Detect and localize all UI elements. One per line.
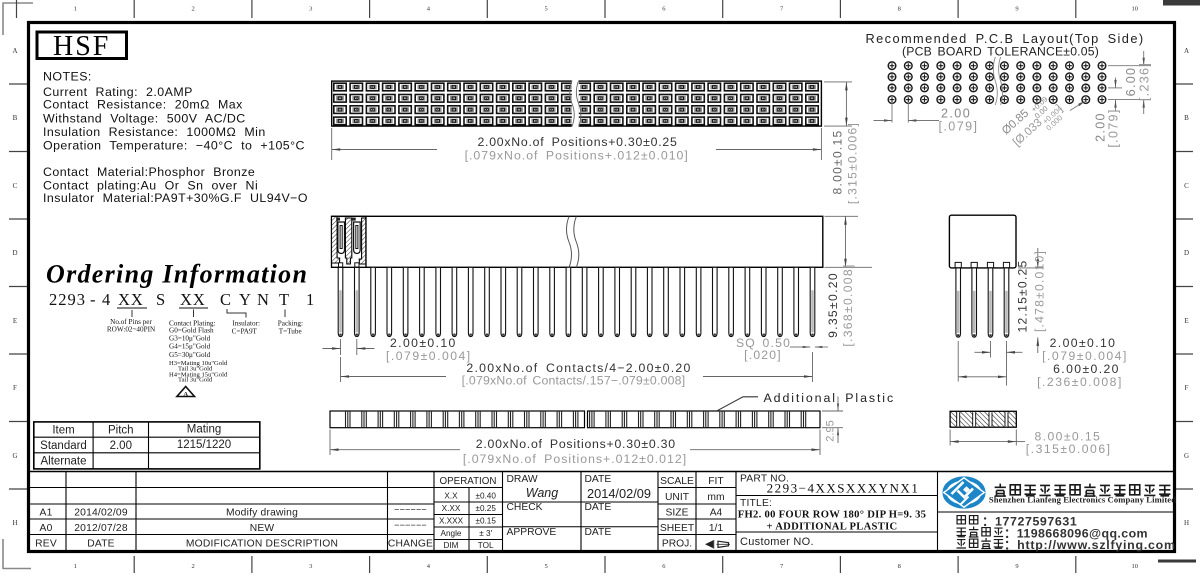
svg-text:2.00±0.10: 2.00±0.10 — [390, 336, 457, 350]
svg-text:[.079±0.004]: [.079±0.004] — [386, 349, 472, 363]
svg-text:6.00±0.20: 6.00±0.20 — [1053, 362, 1120, 376]
svg-text:E: E — [1184, 317, 1188, 325]
svg-text:Contact Material:Phosphor Br: Contact Material:Phosphor Bronze — [43, 165, 255, 179]
svg-text:C: C — [13, 182, 18, 190]
svg-text:B: B — [1184, 114, 1189, 122]
svg-text:Insulator:: Insulator: — [232, 319, 260, 327]
svg-text:[.079xNo.of Positions+.012±0.: [.079xNo.of Positions+.012±0.010] — [465, 149, 689, 163]
svg-text:Contact Resistance: 20mΩ Ma: Contact Resistance: 20mΩ Max — [43, 98, 243, 112]
svg-text:X.XXX: X.XXX — [439, 517, 464, 526]
svg-text:2.00: 2.00 — [1094, 112, 1108, 142]
svg-text:Insulation Resistance: 1000M: Insulation Resistance: 1000MΩ Min — [43, 125, 266, 139]
svg-text:Ordering Information: Ordering Information — [46, 260, 308, 289]
svg-text:Customer NO.: Customer NO. — [740, 536, 814, 548]
svg-text:2012/07/28: 2012/07/28 — [74, 523, 128, 534]
svg-text:OPERATION: OPERATION — [440, 476, 497, 487]
svg-text:DATE: DATE — [87, 539, 115, 550]
svg-text:X.X: X.X — [444, 492, 458, 501]
svg-text:Modify drawing: Modify drawing — [226, 508, 298, 519]
svg-text:C=PA9T: C=PA9T — [232, 328, 258, 336]
svg-text:[.079]: [.079] — [1107, 108, 1121, 147]
svg-text:DATE: DATE — [585, 527, 612, 538]
svg-text:T: T — [279, 290, 290, 309]
svg-text:±0.40: ±0.40 — [475, 492, 496, 501]
svg-text:1/1: 1/1 — [709, 523, 724, 534]
svg-text:+ ADDITIONAL PLASTIC: + ADDITIONAL PLASTIC — [767, 522, 898, 533]
svg-text:Standard: Standard — [40, 440, 87, 452]
svg-text:DIM: DIM — [443, 541, 458, 550]
svg-text:G0=Gold Flash: G0=Gold Flash — [169, 327, 214, 335]
svg-text:CHANGE: CHANGE — [388, 539, 433, 550]
svg-text:Packing:: Packing: — [278, 319, 303, 327]
svg-text:HSF: HSF — [53, 31, 110, 62]
svg-text:H: H — [1184, 519, 1189, 527]
svg-text:SIZE: SIZE — [666, 508, 689, 519]
svg-text:G4=15μ"Gold: G4=15μ"Gold — [169, 342, 211, 350]
svg-text:1: 1 — [74, 6, 77, 13]
svg-text:Insulator Material:PA9T+30%G.: Insulator Material:PA9T+30%G.F UL94V−O — [43, 191, 308, 205]
svg-text:3: 3 — [309, 563, 312, 570]
svg-text:DATE: DATE — [585, 502, 612, 513]
svg-text:TOL: TOL — [478, 541, 494, 550]
svg-text:1: 1 — [74, 563, 77, 570]
svg-text:NOTES:: NOTES: — [43, 70, 92, 84]
svg-text:REV: REV — [35, 539, 57, 550]
svg-text:2293−4XXSXXXYNX1: 2293−4XXSXXXYNX1 — [767, 481, 920, 496]
svg-text:Shenzhen Lianfeng Electronics: Shenzhen Lianfeng Electronics Company Li… — [989, 495, 1176, 505]
svg-text:[.079]: [.079] — [939, 120, 979, 134]
svg-text:Angle: Angle — [441, 529, 462, 538]
svg-text:Y: Y — [239, 290, 252, 309]
svg-text:2.00: 2.00 — [110, 440, 132, 452]
svg-text:2014/02/09: 2014/02/09 — [74, 508, 128, 519]
svg-text:Tail 3u"Gold: Tail 3u"Gold — [178, 377, 213, 384]
svg-text:D: D — [12, 249, 17, 257]
svg-text:(PCB BOARD TOLERANCE±0.05): (PCB BOARD TOLERANCE±0.05) — [902, 44, 1099, 58]
svg-text:F: F — [1185, 384, 1189, 392]
svg-text:[.315±0.006]: [.315±0.006] — [1026, 442, 1112, 456]
svg-text:C: C — [220, 290, 232, 309]
svg-text:2: 2 — [191, 563, 194, 570]
svg-text:T=Tube: T=Tube — [279, 328, 302, 336]
svg-text:6.00: 6.00 — [1124, 67, 1138, 97]
svg-text:TITLE:: TITLE: — [740, 498, 772, 509]
svg-text:2293: 2293 — [49, 290, 86, 309]
svg-text:mm: mm — [707, 492, 724, 503]
svg-text:4: 4 — [102, 290, 111, 309]
svg-text:2.00: 2.00 — [941, 107, 971, 121]
svg-text:5: 5 — [544, 563, 547, 570]
svg-text:SHEET: SHEET — [660, 523, 695, 534]
svg-text:8: 8 — [898, 563, 901, 570]
svg-text:5: 5 — [544, 6, 547, 13]
svg-text:X.XX: X.XX — [442, 504, 461, 513]
svg-text:Mating: Mating — [187, 424, 222, 436]
svg-text:Item: Item — [52, 425, 74, 437]
svg-text:DRAW: DRAW — [507, 474, 538, 485]
svg-text:Operation Temperature: −40°C: Operation Temperature: −40°C to +105°C — [43, 139, 305, 153]
svg-text:1: 1 — [306, 290, 315, 309]
svg-text:SCALE: SCALE — [660, 476, 694, 487]
svg-text:8: 8 — [898, 6, 901, 13]
svg-text:FH2. 00 FOUR ROW 180° DIP: FH2. 00 FOUR ROW 180° DIP H=9. 35 — [738, 510, 927, 521]
svg-text:[.020]: [.020] — [744, 348, 782, 362]
svg-text:±0.25: ±0.25 — [475, 504, 496, 513]
svg-text:B: B — [13, 114, 18, 122]
svg-text:[.079±0.004]: [.079±0.004] — [1042, 349, 1128, 363]
svg-text:E: E — [13, 317, 17, 325]
svg-text:12.15±0.25: 12.15±0.25 — [1016, 260, 1030, 333]
svg-text:PROJ.: PROJ. — [662, 539, 692, 550]
svg-text:N: N — [257, 290, 270, 309]
svg-text:A: A — [1184, 47, 1189, 55]
svg-text:2.00xNo.of Positions+0.30±0.3: 2.00xNo.of Positions+0.30±0.30 — [476, 437, 676, 451]
svg-text:± 3′: ± 3′ — [479, 529, 492, 538]
svg-text:XX: XX — [118, 290, 144, 309]
svg-text:[.478±0.010]: [.478±0.010] — [1033, 250, 1047, 332]
svg-text:G: G — [1184, 452, 1189, 460]
svg-text:Additional Plastic: Additional Plastic — [764, 391, 896, 405]
svg-text:DATE: DATE — [585, 474, 612, 485]
svg-text:[.236]: [.236] — [1137, 62, 1151, 101]
svg-text:2.00±0.10: 2.00±0.10 — [1050, 336, 1117, 350]
svg-text:±0.15: ±0.15 — [475, 517, 496, 526]
svg-text:FIT: FIT — [708, 476, 724, 487]
svg-text:A4: A4 — [710, 508, 723, 519]
svg-text:2.00xNo.of Positions+0.30±0.2: 2.00xNo.of Positions+0.30±0.25 — [477, 135, 677, 149]
svg-text:Wang: Wang — [526, 486, 558, 500]
svg-text:C: C — [1184, 182, 1189, 190]
svg-text:：http://www.szlfying.com: ：http://www.szlfying.com — [1004, 538, 1176, 552]
svg-text:D: D — [1184, 249, 1189, 257]
svg-text:9.35±0.20: 9.35±0.20 — [826, 272, 840, 338]
svg-text:8.00±0.15: 8.00±0.15 — [831, 130, 845, 195]
svg-text:A1: A1 — [40, 508, 53, 519]
svg-text:A0: A0 — [40, 523, 53, 534]
svg-text:[.236±0.008]: [.236±0.008] — [1037, 375, 1123, 389]
svg-text:CHECK: CHECK — [507, 502, 543, 513]
svg-text:Pitch: Pitch — [108, 425, 134, 437]
svg-text:MODIFICATION DESCRIPTION: MODIFICATION DESCRIPTION — [186, 539, 338, 550]
svg-text:A: A — [183, 391, 188, 398]
svg-text:3: 3 — [309, 6, 312, 13]
svg-text:ROW:02~40PIN: ROW:02~40PIN — [107, 326, 156, 334]
svg-text:9: 9 — [1015, 6, 1018, 13]
svg-text:NEW: NEW — [250, 523, 275, 534]
svg-text:2014/02/09: 2014/02/09 — [587, 486, 651, 501]
svg-text:A: A — [12, 47, 17, 55]
svg-text:1215/1220: 1215/1220 — [177, 439, 231, 451]
svg-text:−−−−−−: −−−−−− — [394, 520, 427, 530]
svg-text:10: 10 — [1131, 563, 1138, 570]
svg-text:[.315±0.006]: [.315±0.006] — [846, 122, 860, 204]
svg-text:UNIT: UNIT — [665, 492, 690, 503]
svg-text:Alternate: Alternate — [40, 456, 86, 468]
svg-text:G3=10μ"Gold: G3=10μ"Gold — [169, 335, 211, 343]
svg-text:9: 9 — [1015, 563, 1018, 570]
svg-text:XX: XX — [180, 290, 206, 309]
svg-text:2.95: 2.95 — [825, 420, 837, 441]
svg-text:H: H — [12, 519, 17, 527]
svg-text:F: F — [13, 384, 17, 392]
svg-text:[.079xNo.of Contacts/.157−.07: [.079xNo.of Contacts/.157−.079±0.008] — [462, 374, 686, 388]
svg-text:-: - — [90, 290, 97, 309]
svg-text:Withstand Voltage: 500V AC/: Withstand Voltage: 500V AC/DC — [43, 112, 246, 126]
svg-text:APPROVE: APPROVE — [507, 527, 557, 538]
svg-text:G: G — [12, 452, 17, 460]
svg-text:[.368±0.008]: [.368±0.008] — [841, 263, 855, 346]
svg-text:−−−−−−: −−−−−− — [394, 505, 427, 515]
svg-text:[.079xNo.of Positions+.012±0.: [.079xNo.of Positions+.012±0.012] — [463, 452, 687, 466]
svg-text:2: 2 — [191, 6, 194, 13]
svg-text:S: S — [156, 290, 166, 309]
svg-text:G5=30μ"Gold: G5=30μ"Gold — [169, 351, 211, 359]
svg-text:10: 10 — [1131, 6, 1138, 13]
